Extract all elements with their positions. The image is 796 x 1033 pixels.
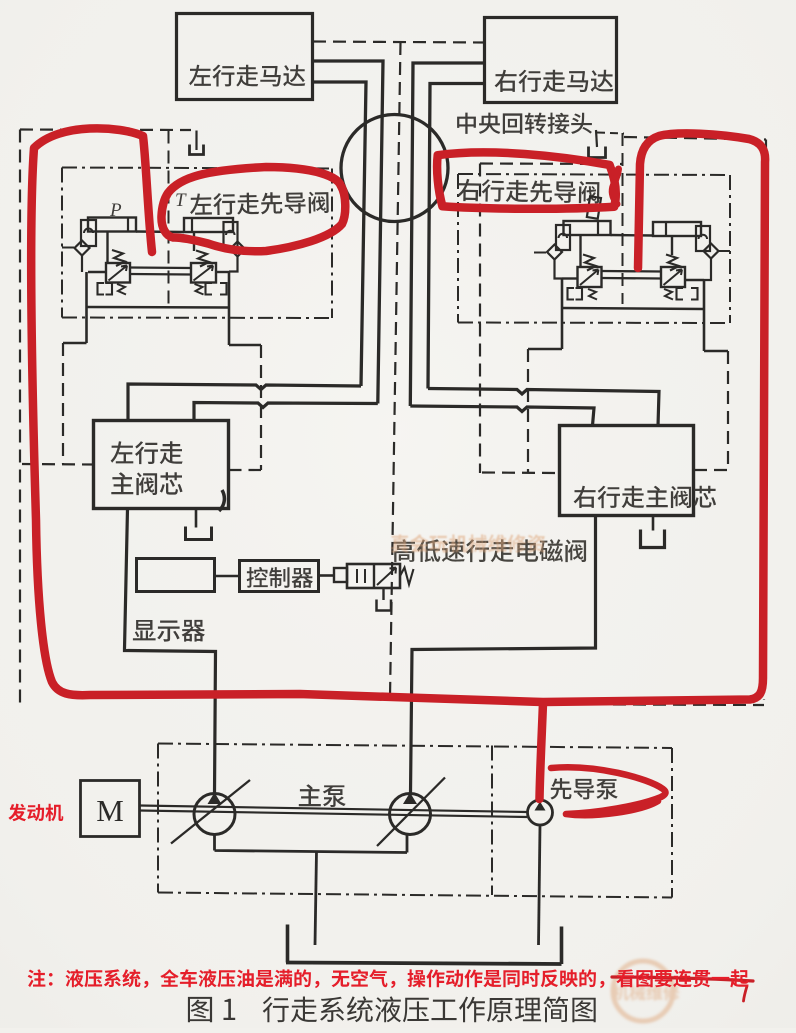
svg-text:M: M	[96, 793, 124, 828]
svg-text:T: T	[175, 190, 187, 211]
